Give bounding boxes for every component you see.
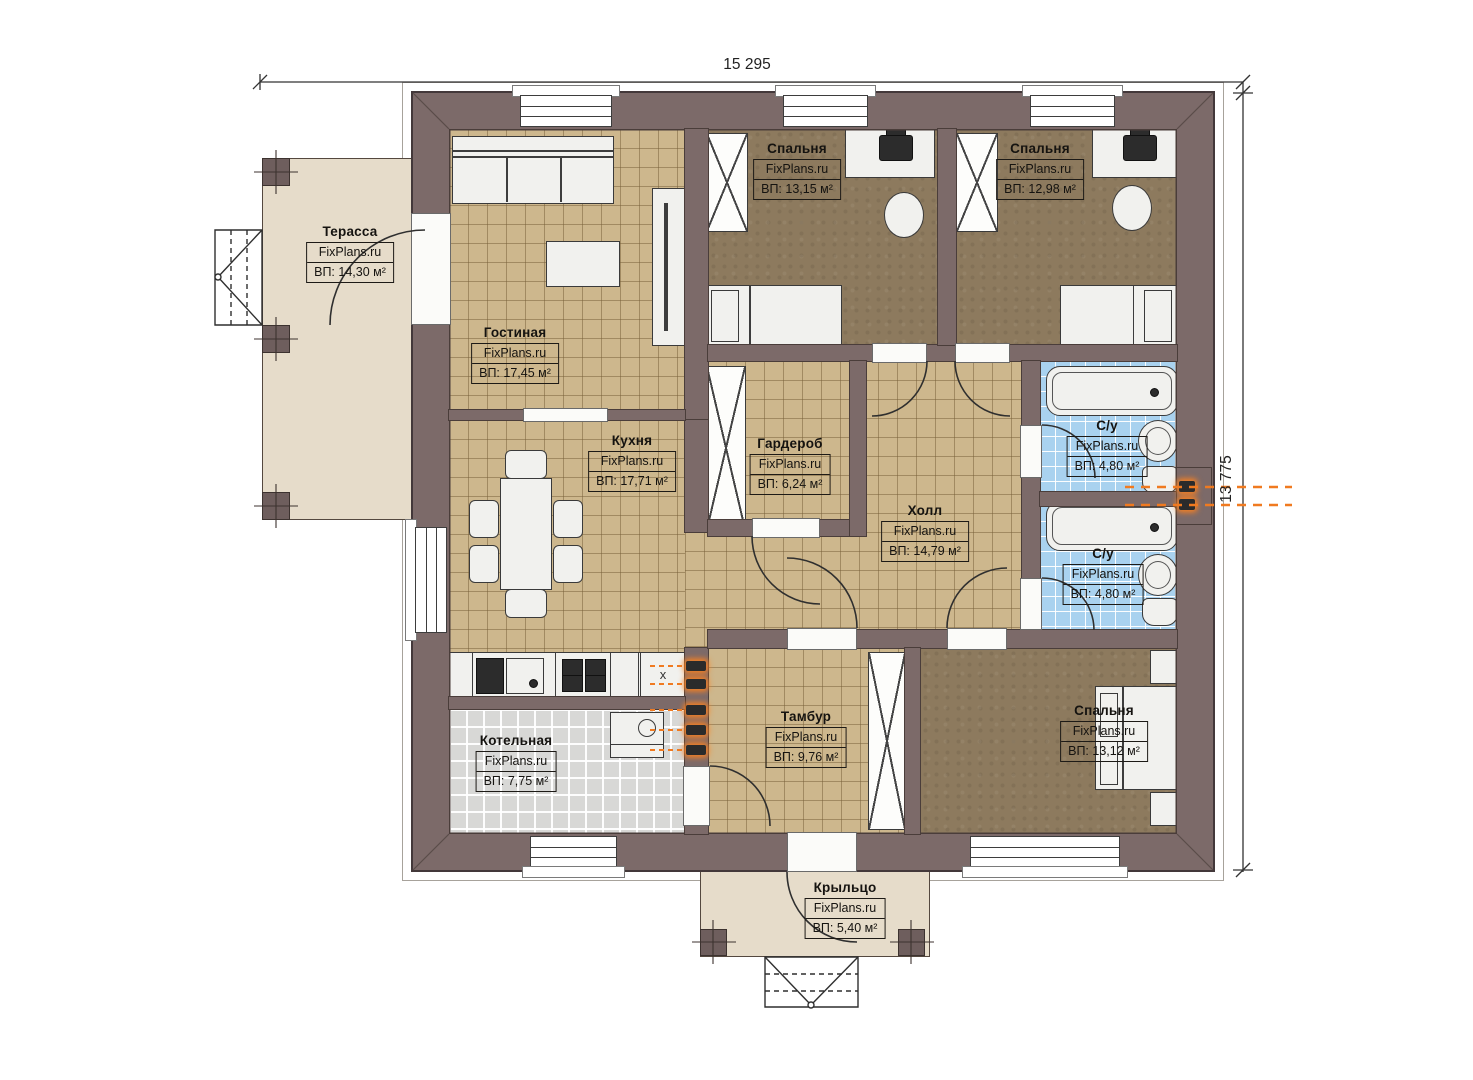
room-area: ВП: 5,40 м² [806, 919, 885, 938]
watermark: FixPlans.ru [307, 243, 393, 263]
radiator-icon [686, 745, 706, 755]
interior-wall [927, 345, 955, 361]
room-area: ВП: 14,79 м² [882, 542, 968, 561]
watermark: FixPlans.ru [767, 728, 846, 748]
room-info-box: FixPlans.ru ВП: 13,15 м² [753, 159, 841, 200]
door-opening-entry [787, 832, 857, 872]
door-opening-hall-tambour [787, 628, 857, 650]
interior-wall [708, 630, 787, 648]
room-info-box: FixPlans.ru ВП: 5,40 м² [805, 898, 886, 939]
watermark: FixPlans.ru [1068, 437, 1147, 457]
room-area: ВП: 13,12 м² [1061, 742, 1147, 761]
room-info-box: FixPlans.ru ВП: 7,75 м² [476, 751, 557, 792]
floor-plan-canvas: х [0, 0, 1473, 1080]
room-name: Крыльцо [805, 880, 886, 895]
room-info-box: FixPlans.ru ВП: 9,76 м² [766, 727, 847, 768]
interior-wall [708, 345, 872, 361]
room-label-kitchen: Кухня FixPlans.ru ВП: 17,71 м² [588, 433, 676, 492]
room-label-terrace: Терасса FixPlans.ru ВП: 14,30 м² [306, 224, 394, 283]
gas-connection-icon [1179, 499, 1195, 510]
dim-tick [1236, 863, 1250, 877]
door-opening-bedroom1 [872, 343, 927, 363]
room-info-box: FixPlans.ru ВП: 14,79 м² [881, 521, 969, 562]
porch-column [898, 929, 925, 956]
room-label-wardrobe: Гардероб FixPlans.ru ВП: 6,24 м² [750, 436, 831, 495]
door-opening-bath1 [1020, 425, 1042, 478]
room-area: ВП: 12,98 м² [997, 180, 1083, 199]
window [970, 836, 1120, 868]
radiator-icon [686, 661, 706, 671]
door-opening-terrace [411, 213, 451, 325]
door-opening-bath2 [1020, 578, 1042, 630]
window [415, 527, 447, 633]
room-label-living: Гостиная FixPlans.ru ВП: 17,45 м² [471, 325, 559, 384]
watermark: FixPlans.ru [882, 522, 968, 542]
room-info-box: FixPlans.ru ВП: 4,80 м² [1063, 564, 1144, 605]
wall-protrusion [1177, 468, 1211, 524]
dim-tick [253, 75, 267, 89]
room-label-boiler: Котельная FixPlans.ru ВП: 7,75 м² [476, 733, 557, 792]
room-label-tambour: Тамбур FixPlans.ru ВП: 9,76 м² [766, 709, 847, 768]
room-info-box: FixPlans.ru ВП: 13,12 м² [1060, 721, 1148, 762]
dim-tick [1236, 75, 1250, 89]
interior-wall [685, 129, 708, 420]
door-opening-bedroom3 [947, 628, 1007, 650]
room-area: ВП: 6,24 м² [751, 475, 830, 494]
window [520, 95, 612, 127]
door-opening-boiler [683, 766, 710, 826]
room-area: ВП: 4,80 м² [1068, 457, 1147, 476]
interior-wall [850, 361, 866, 536]
gas-connection-icon [1179, 481, 1195, 492]
room-name: Гардероб [750, 436, 831, 451]
interior-wall [1022, 478, 1040, 578]
interior-wall [449, 697, 685, 709]
dimension-width: 15 295 [687, 56, 807, 74]
room-info-box: FixPlans.ru ВП: 17,45 м² [471, 343, 559, 384]
watermark: FixPlans.ru [477, 752, 556, 772]
room-label-bath1: С/у FixPlans.ru ВП: 4,80 м² [1067, 418, 1148, 477]
radiator-icon [686, 705, 706, 715]
room-label-bedroom1: Спальня FixPlans.ru ВП: 13,15 м² [753, 141, 841, 200]
interior-wall [685, 826, 708, 834]
interior-wall [938, 129, 956, 345]
interior-wall [1007, 630, 1177, 648]
window [783, 95, 868, 127]
terrace-column [262, 325, 290, 353]
interior-wall [820, 520, 850, 536]
room-area: ВП: 14,30 м² [307, 263, 393, 282]
room-name: Терасса [306, 224, 394, 239]
terrace-steps [215, 230, 262, 325]
porch-column [700, 929, 727, 956]
room-area: ВП: 17,71 м² [589, 472, 675, 491]
room-label-hall: Холл FixPlans.ru ВП: 14,79 м² [881, 503, 969, 562]
radiator-icon [686, 725, 706, 735]
room-name: Котельная [476, 733, 557, 748]
room-label-bedroom3: Спальня FixPlans.ru ВП: 13,12 м² [1060, 703, 1148, 762]
watermark: FixPlans.ru [1061, 722, 1147, 742]
interior-wall [685, 420, 708, 532]
porch-steps [765, 957, 858, 1007]
room-name: Кухня [588, 433, 676, 448]
window-sill [962, 866, 1128, 878]
pass-through-opening [523, 408, 608, 422]
room-name: Спальня [996, 141, 1084, 156]
window [1030, 95, 1115, 127]
radiator-icon [686, 679, 706, 689]
room-area: ВП: 4,80 м² [1064, 585, 1143, 604]
room-name: Спальня [1060, 703, 1148, 718]
dim-tick [1236, 86, 1250, 100]
window [530, 836, 617, 868]
terrace-column [262, 492, 290, 520]
room-area: ВП: 7,75 м² [477, 772, 556, 791]
interior-wall [905, 648, 920, 834]
dimension-height: 13 775 [1218, 419, 1236, 539]
window-sill [522, 866, 625, 878]
room-label-bedroom2: Спальня FixPlans.ru ВП: 12,98 м² [996, 141, 1084, 200]
room-info-box: FixPlans.ru ВП: 14,30 м² [306, 242, 394, 283]
room-name: Спальня [753, 141, 841, 156]
room-label-bath2: С/у FixPlans.ru ВП: 4,80 м² [1063, 546, 1144, 605]
interior-wall [1022, 361, 1040, 425]
room-area: ВП: 17,45 м² [472, 364, 558, 383]
terrace-column [262, 158, 290, 186]
watermark: FixPlans.ru [754, 160, 840, 180]
room-name: С/у [1063, 546, 1144, 561]
watermark: FixPlans.ru [589, 452, 675, 472]
interior-wall [1040, 492, 1177, 506]
room-area: ВП: 13,15 м² [754, 180, 840, 199]
interior-wall [708, 520, 752, 536]
room-info-box: FixPlans.ru ВП: 4,80 м² [1067, 436, 1148, 477]
door-opening-wardrobe [752, 518, 820, 538]
room-info-box: FixPlans.ru ВП: 17,71 м² [588, 451, 676, 492]
room-info-box: FixPlans.ru ВП: 12,98 м² [996, 159, 1084, 200]
room-info-box: FixPlans.ru ВП: 6,24 м² [750, 454, 831, 495]
watermark: FixPlans.ru [1064, 565, 1143, 585]
interior-wall [1010, 345, 1177, 361]
room-name: Тамбур [766, 709, 847, 724]
interior-wall [857, 630, 947, 648]
interior-wall [608, 410, 685, 420]
room-label-porch: Крыльцо FixPlans.ru ВП: 5,40 м² [805, 880, 886, 939]
watermark: FixPlans.ru [472, 344, 558, 364]
door-opening-bedroom2 [955, 343, 1010, 363]
room-name: Холл [881, 503, 969, 518]
room-area: ВП: 9,76 м² [767, 748, 846, 767]
watermark: FixPlans.ru [997, 160, 1083, 180]
watermark: FixPlans.ru [751, 455, 830, 475]
watermark: FixPlans.ru [806, 899, 885, 919]
room-name: Гостиная [471, 325, 559, 340]
interior-wall [449, 410, 523, 420]
room-name: С/у [1067, 418, 1148, 433]
